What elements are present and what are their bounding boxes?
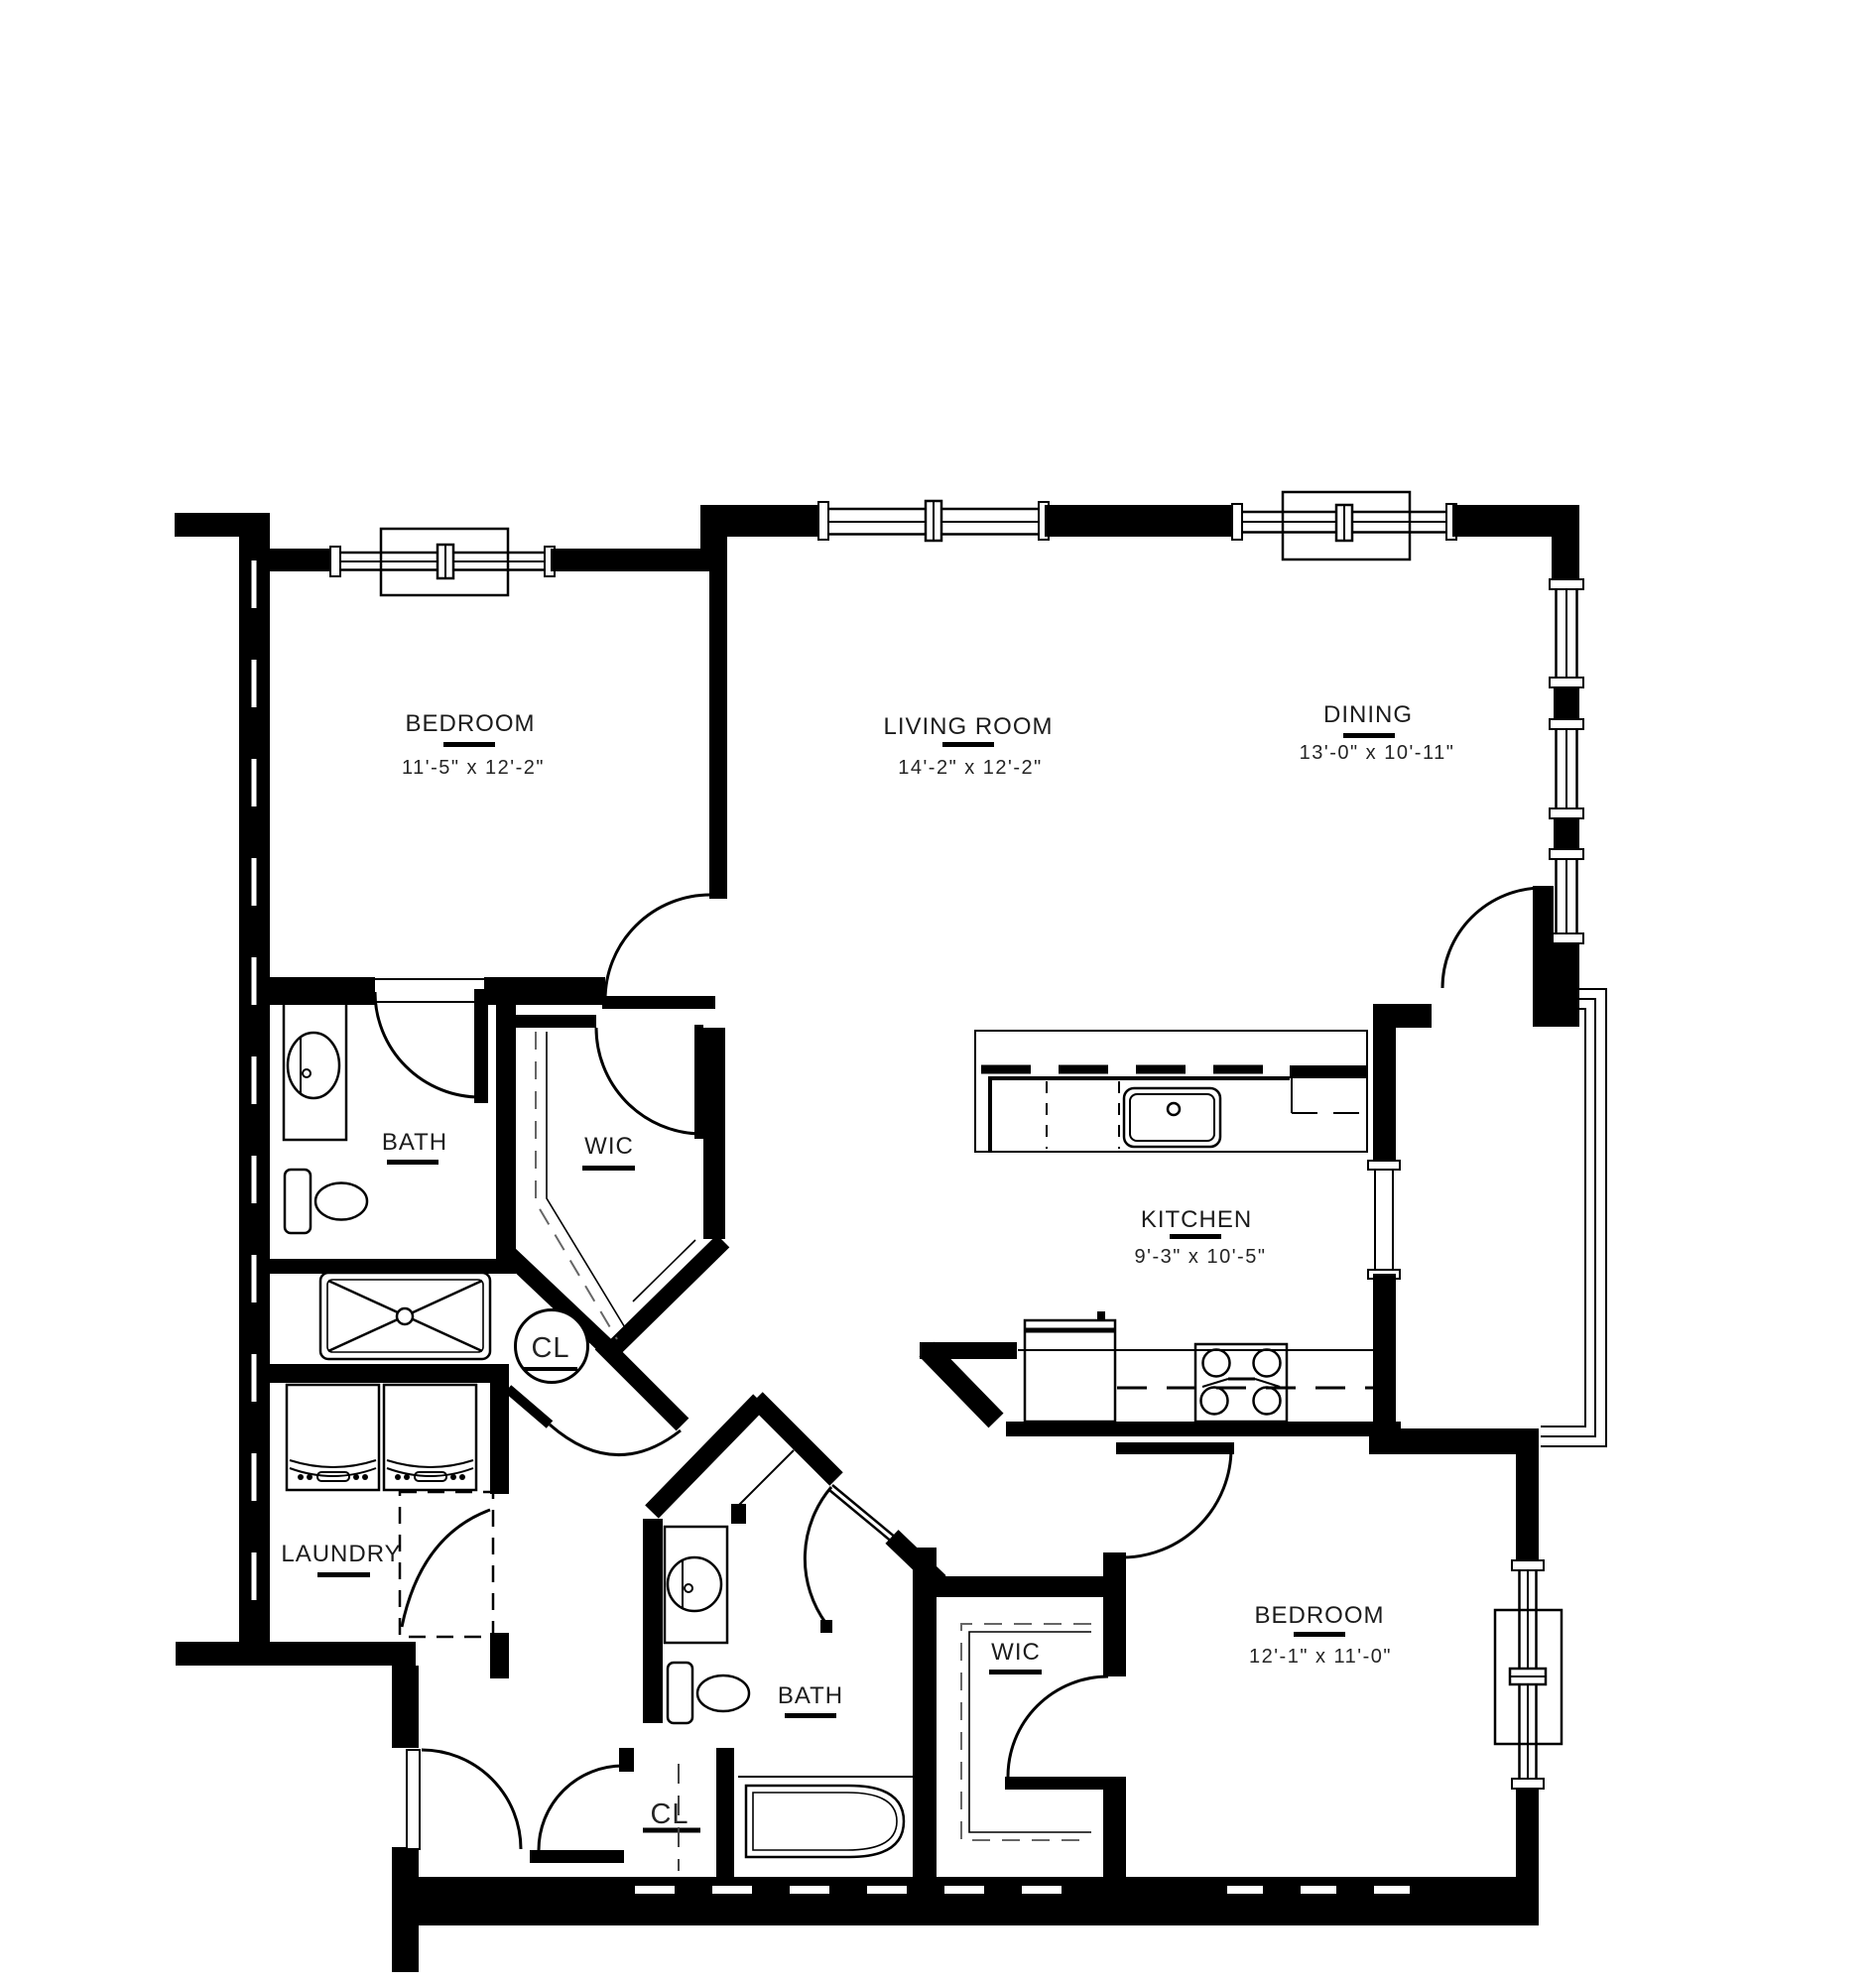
svg-text:11'-5" x 12'-2": 11'-5" x 12'-2" — [402, 757, 545, 779]
svg-text:13'-0" x 10'-11": 13'-0" x 10'-11" — [1300, 742, 1455, 764]
svg-text:WIC: WIC — [991, 1639, 1041, 1666]
svg-text:CL: CL — [531, 1332, 569, 1364]
svg-text:LIVING ROOM: LIVING ROOM — [883, 713, 1053, 740]
svg-text:14'-2" x 12'-2": 14'-2" x 12'-2" — [898, 757, 1043, 779]
svg-text:KITCHEN: KITCHEN — [1141, 1206, 1252, 1233]
svg-text:LAUNDRY: LAUNDRY — [281, 1541, 401, 1567]
svg-text:CL: CL — [650, 1798, 688, 1830]
svg-text:BATH: BATH — [778, 1682, 843, 1709]
svg-text:DINING: DINING — [1323, 701, 1413, 728]
svg-text:WIC: WIC — [584, 1133, 634, 1160]
svg-text:BEDROOM: BEDROOM — [405, 710, 535, 737]
svg-text:9'-3" x 10'-5": 9'-3" x 10'-5" — [1135, 1246, 1267, 1268]
svg-text:12'-1" x 11'-0": 12'-1" x 11'-0" — [1249, 1646, 1392, 1668]
svg-text:BEDROOM: BEDROOM — [1254, 1602, 1384, 1629]
svg-text:BATH: BATH — [382, 1129, 447, 1156]
